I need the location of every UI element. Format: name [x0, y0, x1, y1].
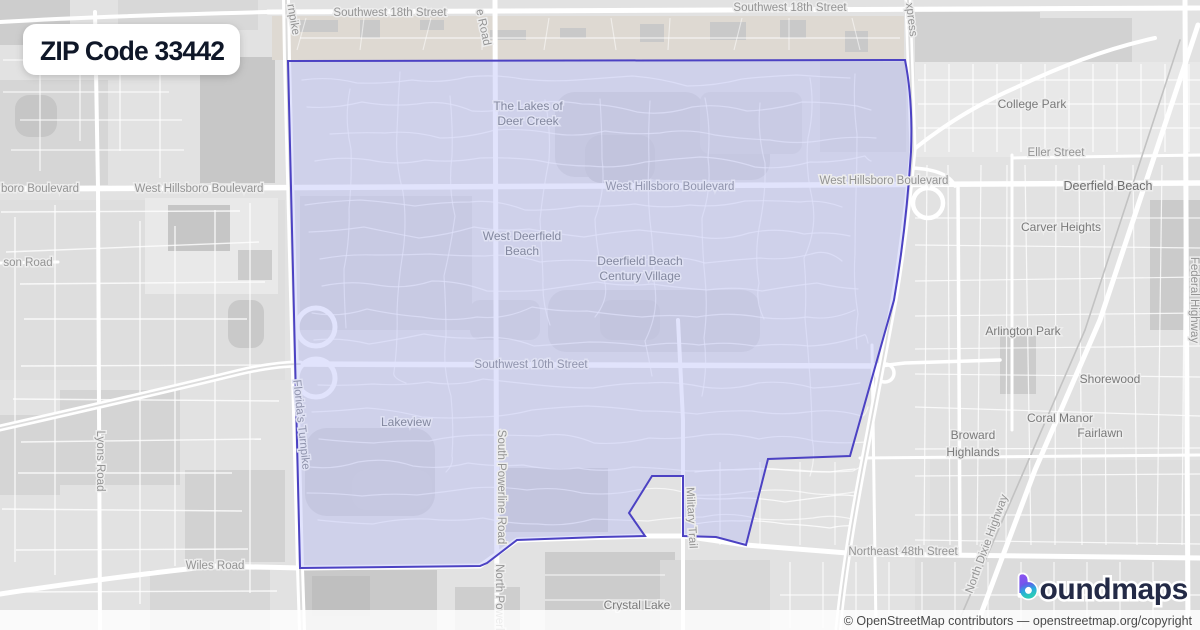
- svg-text:Highlands: Highlands: [946, 445, 999, 459]
- svg-text:Carver Heights: Carver Heights: [1021, 220, 1101, 234]
- svg-text:Southwest 10th Street: Southwest 10th Street: [474, 359, 588, 371]
- svg-text:Deerfield Beach: Deerfield Beach: [1064, 179, 1153, 193]
- svg-text:Deerfield Beach: Deerfield Beach: [597, 254, 682, 268]
- svg-text:Arlington Park: Arlington Park: [985, 324, 1061, 338]
- svg-text:South Powerline Road: South Powerline Road: [495, 430, 507, 544]
- svg-text:College Park: College Park: [998, 97, 1068, 111]
- svg-text:© OpenStreetMap contributors —: © OpenStreetMap contributors — openstree…: [844, 614, 1193, 628]
- svg-text:Lakeview: Lakeview: [381, 415, 431, 429]
- svg-text:Broward: Broward: [951, 428, 996, 442]
- svg-text:boro Boulevard: boro Boulevard: [1, 183, 79, 195]
- svg-text:Beach: Beach: [505, 244, 539, 258]
- svg-text:Fairlawn: Fairlawn: [1077, 426, 1122, 440]
- svg-text:West Hillsboro Boulevard: West Hillsboro Boulevard: [820, 175, 949, 187]
- svg-text:Deer Creek: Deer Creek: [497, 114, 559, 128]
- svg-text:West Deerfield: West Deerfield: [483, 229, 561, 243]
- svg-text:Crystal Lake: Crystal Lake: [604, 598, 671, 612]
- svg-text:Federal Highway: Federal Highway: [1188, 257, 1200, 344]
- svg-text:Southwest 18th Street: Southwest 18th Street: [333, 7, 447, 19]
- svg-text:Shorewood: Shorewood: [1080, 372, 1141, 386]
- svg-text:West Hillsboro Boulevard: West Hillsboro Boulevard: [606, 181, 735, 193]
- svg-text:Wiles Road: Wiles Road: [186, 560, 245, 572]
- svg-text:The Lakes of: The Lakes of: [493, 99, 563, 113]
- svg-text:Century Village: Century Village: [599, 269, 680, 283]
- svg-text:Northeast 48th Street: Northeast 48th Street: [848, 546, 958, 558]
- svg-text:son Road: son Road: [3, 257, 52, 269]
- svg-text:West Hillsboro Boulevard: West Hillsboro Boulevard: [135, 183, 264, 195]
- svg-text:ZIP Code 33442: ZIP Code 33442: [40, 36, 224, 66]
- svg-text:Coral Manor: Coral Manor: [1027, 411, 1093, 425]
- svg-text:Eller Street: Eller Street: [1028, 147, 1086, 159]
- svg-text:Southwest 18th Street: Southwest 18th Street: [733, 2, 847, 14]
- svg-text:Lyons Road: Lyons Road: [94, 431, 106, 492]
- svg-text:oundmaps: oundmaps: [1040, 573, 1188, 606]
